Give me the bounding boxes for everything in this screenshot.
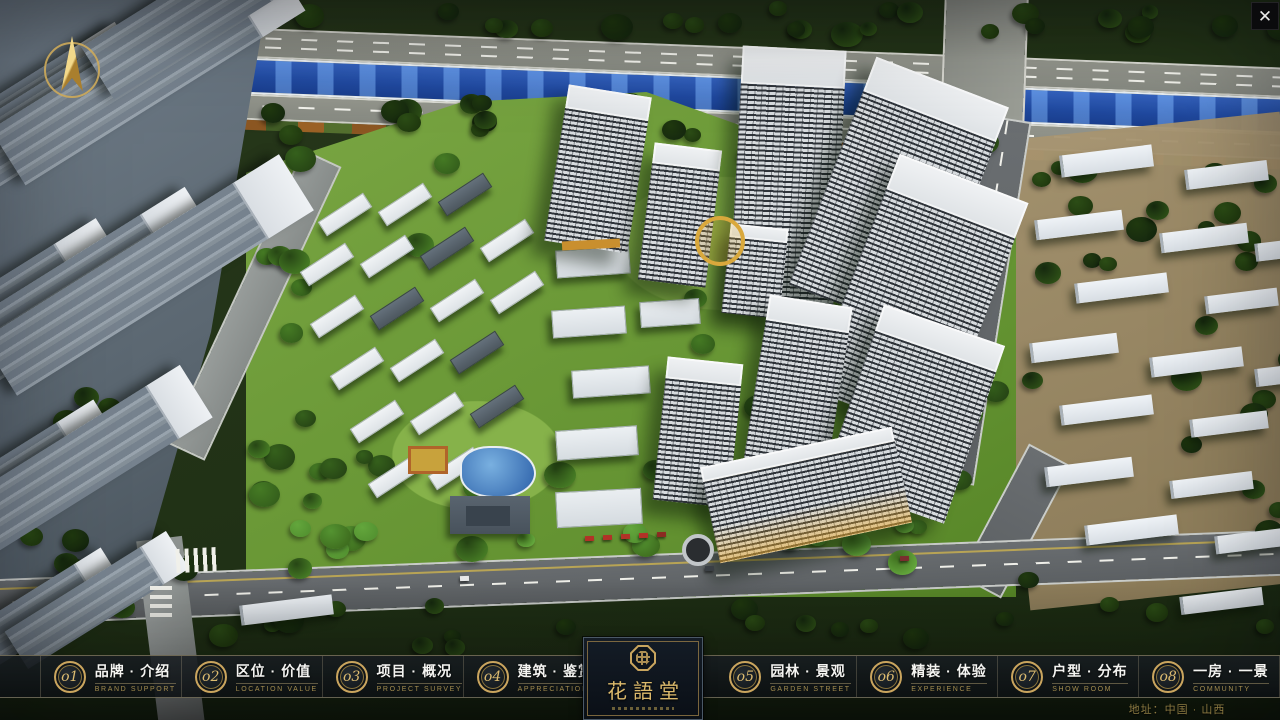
tree — [356, 450, 372, 463]
close-icon[interactable]: ✕ — [1251, 2, 1279, 30]
nav-sublabel: APPRECIATION — [518, 683, 593, 693]
nav-label: 建筑 · 鉴赏 — [518, 661, 593, 681]
tree — [485, 18, 503, 33]
nav-sublabel: BRAND SUPPORT — [95, 683, 176, 693]
nav-label: 精装 · 体验 — [911, 661, 986, 681]
tree — [1181, 436, 1202, 453]
tree — [1100, 597, 1119, 612]
tree — [1035, 262, 1061, 283]
tree — [1126, 217, 1157, 242]
nav-sublabel: LOCATION VALUE — [236, 683, 318, 693]
crosswalk — [150, 586, 172, 622]
nav-badge-o7: o7 — [1011, 661, 1043, 693]
tree — [888, 550, 918, 574]
nav-item-interior[interactable]: o6 精装 · 体验 EXPERIENCE — [857, 656, 998, 697]
gold-plaza — [695, 216, 745, 266]
midrise-roof — [551, 305, 627, 338]
car — [705, 566, 714, 571]
tree — [662, 120, 686, 140]
tree — [1256, 619, 1274, 634]
tree — [474, 111, 497, 130]
nav-label: 户型 · 分布 — [1052, 661, 1127, 681]
tree — [897, 2, 923, 23]
tree — [831, 622, 849, 637]
tree — [769, 1, 787, 16]
tree — [1146, 603, 1169, 622]
tree — [1128, 16, 1155, 38]
car — [585, 536, 594, 541]
tree — [456, 536, 488, 562]
tree — [860, 22, 877, 36]
nav-badge-o8: o8 — [1152, 661, 1184, 693]
tree — [445, 639, 466, 656]
nav-sublabel: COMMUNITY — [1193, 683, 1268, 693]
midrise-roof — [555, 425, 639, 461]
tree — [903, 628, 929, 650]
tree — [544, 462, 575, 488]
car — [603, 535, 612, 540]
nav-badge-o2: o2 — [195, 661, 227, 693]
nav-item-location[interactable]: o2 区位 · 价值 LOCATION VALUE — [182, 656, 323, 697]
nav-badge-o4: o4 — [477, 661, 509, 693]
nav-sublabel: SHOW ROOM — [1052, 683, 1127, 693]
tree — [1195, 316, 1218, 335]
tree — [279, 125, 303, 145]
nav-label: 项目 · 概况 — [377, 661, 463, 681]
car — [900, 556, 909, 561]
brand-logo[interactable]: 花語堂 — [583, 637, 703, 720]
nav-item-brand[interactable]: o1 品牌 · 介绍 BRAND SUPPORT — [41, 656, 182, 697]
tree — [1022, 372, 1043, 389]
swimming-pool — [460, 446, 536, 498]
seal-icon — [630, 645, 656, 671]
tree — [280, 323, 304, 342]
tree — [285, 146, 316, 171]
compass-icon[interactable] — [44, 42, 100, 98]
tree — [531, 19, 553, 37]
tree — [320, 524, 350, 549]
tree — [691, 334, 715, 354]
tree — [472, 95, 492, 112]
logo-title: 花語堂 — [601, 675, 685, 704]
nav-label: 园林 · 景观 — [770, 661, 850, 681]
tree — [320, 458, 347, 480]
tree — [663, 13, 682, 29]
tree — [796, 615, 816, 631]
tree — [261, 103, 285, 123]
tree — [787, 22, 805, 36]
tree — [1018, 572, 1039, 589]
midrise-roof — [639, 298, 701, 328]
logo-tagline — [612, 707, 674, 710]
tree — [745, 615, 765, 631]
tree — [354, 522, 378, 542]
tree — [303, 493, 323, 509]
nav-sublabel: EXPERIENCE — [911, 683, 986, 693]
nav-label: 品牌 · 介绍 — [95, 661, 176, 681]
tree — [209, 624, 238, 647]
car — [621, 534, 630, 539]
nav-item-garden[interactable]: o5 园林 · 景观 GARDEN STREET — [716, 656, 857, 697]
car — [639, 533, 648, 538]
nav-item-project[interactable]: o3 项目 · 概况 PROJECT SURVEY — [323, 656, 464, 697]
tree — [831, 22, 862, 48]
gatehouse-inner — [466, 506, 510, 526]
tree — [438, 3, 458, 20]
car — [657, 532, 666, 537]
app-window: ✕ o1 品牌 · 介绍 BRAND SUPPORT o2 区位 · 价值 LO… — [0, 0, 1280, 720]
nav-badge-o5: o5 — [729, 661, 761, 693]
tree — [412, 637, 432, 654]
tree — [249, 482, 280, 507]
tree — [517, 533, 535, 547]
nav-spacer — [0, 656, 41, 697]
nav-sublabel: GARDEN STREET — [770, 683, 850, 693]
tree — [981, 24, 999, 39]
tree — [1212, 15, 1239, 37]
compass-needle-icon — [56, 36, 88, 96]
nav-badge-o1: o1 — [54, 661, 86, 693]
tree — [1098, 9, 1122, 28]
tree — [718, 13, 742, 33]
tree — [425, 598, 444, 614]
masterplan-viewport[interactable]: ✕ — [0, 0, 1280, 720]
tree — [62, 529, 90, 552]
nav-label: 区位 · 价值 — [236, 661, 318, 681]
tree — [601, 14, 633, 40]
nav-item-floorplan[interactable]: o7 户型 · 分布 SHOW ROOM — [998, 656, 1139, 697]
midrise-roof — [571, 365, 651, 398]
nav-item-community[interactable]: o8 一房 · 一景 COMMUNITY — [1139, 656, 1280, 697]
address-text: 地址：中国 · 山西 — [1112, 701, 1242, 717]
entrance-roundabout — [682, 534, 714, 566]
tree — [1214, 202, 1241, 224]
tree — [288, 558, 313, 578]
tree — [248, 440, 269, 458]
amenity-roof — [408, 446, 448, 474]
entrance-canopy — [555, 488, 643, 528]
car — [460, 576, 469, 581]
crosswalk — [175, 547, 220, 573]
nav-sublabel: PROJECT SURVEY — [377, 683, 463, 693]
tree — [685, 17, 704, 33]
nav-label: 一房 · 一景 — [1193, 661, 1268, 681]
nav-badge-o6: o6 — [870, 661, 902, 693]
nav-badge-o3: o3 — [336, 661, 368, 693]
